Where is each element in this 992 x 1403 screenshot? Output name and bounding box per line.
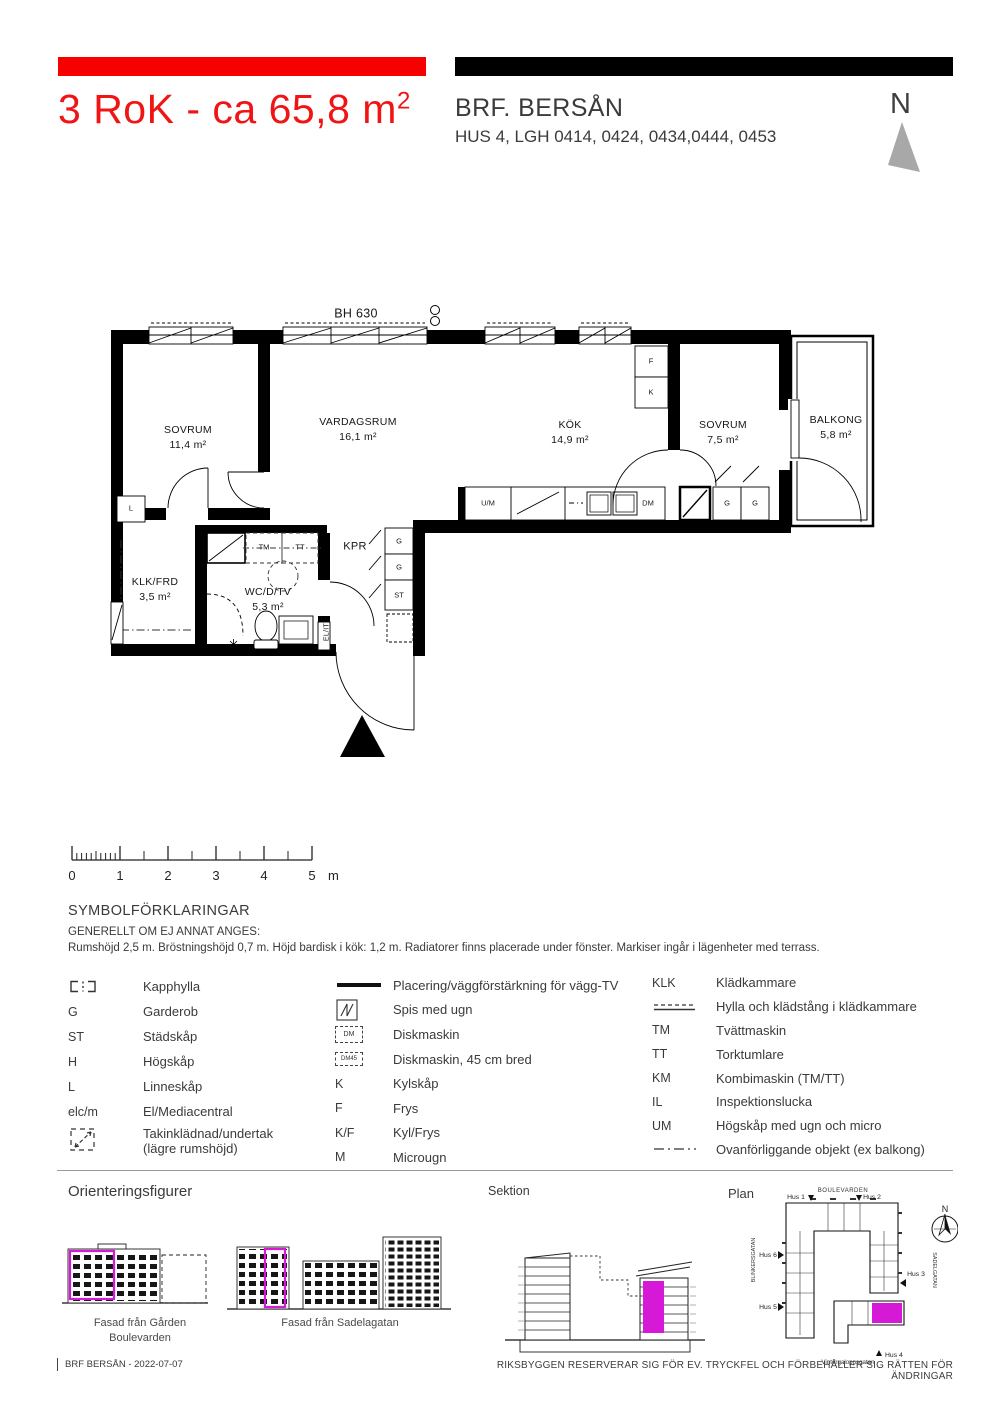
legend-item: Kapphylla — [68, 974, 333, 999]
section-figure — [500, 1240, 710, 1360]
legend-item: DM45 Diskmaskin, 45 cm bred — [335, 1047, 645, 1072]
hus5-label: Hus 5 — [759, 1304, 777, 1311]
takinkladnad-icon — [68, 1126, 143, 1154]
facade-figure-2 — [225, 1225, 455, 1313]
floorplan-sheet: 3 RoK - ca 65,8 m2 BRF. BERSÅN HUS 4, LG… — [0, 0, 992, 1403]
footer-disclaimer: RIKSBYGGEN RESERVERAR SIG FÖR EV. TRYCKF… — [453, 1360, 953, 1382]
floorplan-drawing — [103, 300, 885, 772]
legend-item: elc/m El/Mediacentral — [68, 1099, 333, 1124]
legend-item: TT Torktumlare — [652, 1042, 962, 1066]
street-blinkersgatan: BLINKERSGATAN — [751, 1238, 757, 1283]
legend-item: Placering/väggförstärkning för vägg-TV — [335, 973, 645, 998]
scale-tick-2: 2 — [164, 868, 171, 883]
legend-item: M Microugn — [335, 1145, 645, 1170]
black-accent-bar — [455, 57, 953, 76]
facade2-caption: Fasad från Sadelagatan — [225, 1316, 455, 1331]
orientering-heading: Orienteringsfigurer — [68, 1183, 192, 1200]
section-marker-icon — [431, 306, 440, 326]
section-divider — [57, 1170, 953, 1171]
room-label-klkfrd: KLK/FRD3,5 m² — [132, 575, 178, 605]
legend-item: L Linneskåp — [68, 1074, 333, 1099]
linneskap-label: L — [129, 501, 133, 516]
doors — [168, 400, 861, 730]
hus4-label: Hus 4 — [885, 1352, 903, 1359]
footer-left: BRF BERSÅN - 2022-07-07 — [57, 1358, 183, 1371]
room-label-vardagsrum: VARDAGSRUM16,1 m² — [319, 415, 396, 445]
bh-label: BH 630 — [334, 307, 378, 322]
hus1-label: Hus 1 — [787, 1194, 805, 1201]
page-title: 3 RoK - ca 65,8 m2 — [58, 86, 411, 133]
garderob-label: G — [752, 496, 758, 511]
highlighted-apartment — [872, 1303, 902, 1323]
scale-tick-5: 5 — [308, 868, 315, 883]
garderob-label: G — [724, 496, 730, 511]
page-title-sup: 2 — [397, 87, 411, 114]
legend-column-2: Placering/väggförstärkning för vägg-TV S… — [335, 973, 645, 1170]
legend-item: K/F Kyl/Frys — [335, 1121, 645, 1146]
um-label: U/M — [481, 496, 495, 511]
legend-item: F Frys — [335, 1096, 645, 1121]
wall-tv-icon — [335, 981, 393, 989]
room-label-wc: WC/D/TV5,3 m² — [245, 585, 291, 615]
legend-item: K Kylskåp — [335, 1071, 645, 1096]
facade1-caption: Fasad från Gården Boulevarden — [45, 1316, 235, 1346]
scale-bar: 0 1 2 3 4 5 m — [66, 842, 356, 886]
overhead-object-icon — [652, 1146, 716, 1152]
elit-label: EL/IT — [320, 623, 335, 641]
legend-item: Takinklädnad/undertak (lägre rumshöjd) — [68, 1124, 333, 1166]
hus3-label: Hus 3 — [907, 1271, 925, 1278]
stove-icon — [335, 998, 393, 1022]
room-label-sovrum2: SOVRUM7,5 m² — [699, 418, 747, 448]
kyl-label: K — [648, 385, 653, 400]
stadskap-label: ST — [394, 588, 404, 603]
floorplan: BH 630 SOVRUM11,4 m² VARDAGSRUM16,1 m² K… — [103, 300, 885, 772]
dishwasher-icon: DM — [335, 1026, 393, 1043]
compass-icon: N — [932, 1204, 958, 1242]
garderob-label: G — [396, 534, 402, 549]
symbols-heading: SYMBOLFÖRKLARINGAR — [68, 903, 250, 919]
legend-item: G Garderob — [68, 999, 333, 1024]
room-label-sovrum1: SOVRUM11,4 m² — [164, 423, 212, 453]
legend-item: Spis med ugn — [335, 998, 645, 1023]
room-label-kok: KÖK14,9 m² — [551, 418, 589, 448]
dishwasher45-icon: DM45 — [335, 1052, 393, 1066]
sektion-heading: Sektion — [488, 1184, 530, 1198]
room-label-balkong: BALKONG5,8 m² — [810, 413, 863, 443]
scale-tick-0: 0 — [68, 868, 75, 883]
tm-label: TM — [259, 540, 270, 555]
street-sadelgatan: SADELGATAN — [931, 1252, 937, 1288]
legend-item: KM Kombimaskin (TM/TT) — [652, 1066, 962, 1090]
facade-figure-1 — [60, 1235, 210, 1313]
shelf-rail-icon — [652, 1002, 716, 1012]
hus2-label: Hus 2 — [863, 1194, 881, 1201]
garderob-label: G — [396, 560, 402, 575]
frys-label: F — [649, 354, 654, 369]
scale-unit: m — [328, 868, 339, 883]
scale-tick-4: 4 — [260, 868, 267, 883]
tt-label: TT — [295, 540, 304, 555]
legend-item: H Högskåp — [68, 1049, 333, 1074]
legend-column-3: KLK Klädkammare Hylla och klädstång i kl… — [652, 971, 962, 1161]
dm-label: DM — [642, 496, 654, 511]
red-accent-bar — [58, 57, 426, 76]
legend-item: Hylla och klädstång i klädkammare — [652, 995, 962, 1019]
symbols-subheading: GENERELLT OM EJ ANNAT ANGES: — [68, 926, 260, 938]
page-title-text: 3 RoK - ca 65,8 m — [58, 86, 397, 132]
compass-n-label: N — [942, 1204, 949, 1214]
legend-item: UM Högskåp med ugn och micro — [652, 1114, 962, 1138]
project-name: BRF. BERSÅN — [455, 94, 623, 123]
scale-tick-1: 1 — [116, 868, 123, 883]
apartment-list: HUS 4, LGH 0414, 0424, 0434,0444, 0453 — [455, 127, 776, 147]
legend-item: DM Diskmaskin — [335, 1022, 645, 1047]
scale-tick-3: 3 — [212, 868, 219, 883]
legend-item: KLK Klädkammare — [652, 971, 962, 995]
site-plan-figure: BOULEVARDEN Vintergaloppsgatan BLINKERSG… — [748, 1183, 958, 1371]
north-label: N — [890, 88, 911, 121]
legend-column-1: Kapphylla G Garderob ST Städskåp H Högsk… — [68, 974, 333, 1166]
street-boulevarden: BOULEVARDEN — [818, 1188, 868, 1194]
room-label-kpr: KPR — [343, 540, 367, 555]
symbols-general-text: Rumshöjd 2,5 m. Bröstningshöjd 0,7 m. Hö… — [68, 942, 958, 954]
hus6-label: Hus 6 — [759, 1252, 777, 1259]
north-arrow-icon — [880, 118, 930, 180]
legend-item: TM Tvättmaskin — [652, 1019, 962, 1043]
legend-item: ST Städskåp — [68, 1024, 333, 1049]
kapphylla-icon — [68, 979, 143, 994]
legend-item: IL Inspektionslucka — [652, 1090, 962, 1114]
legend-item: Ovanförliggande objekt (ex balkong) — [652, 1138, 962, 1162]
